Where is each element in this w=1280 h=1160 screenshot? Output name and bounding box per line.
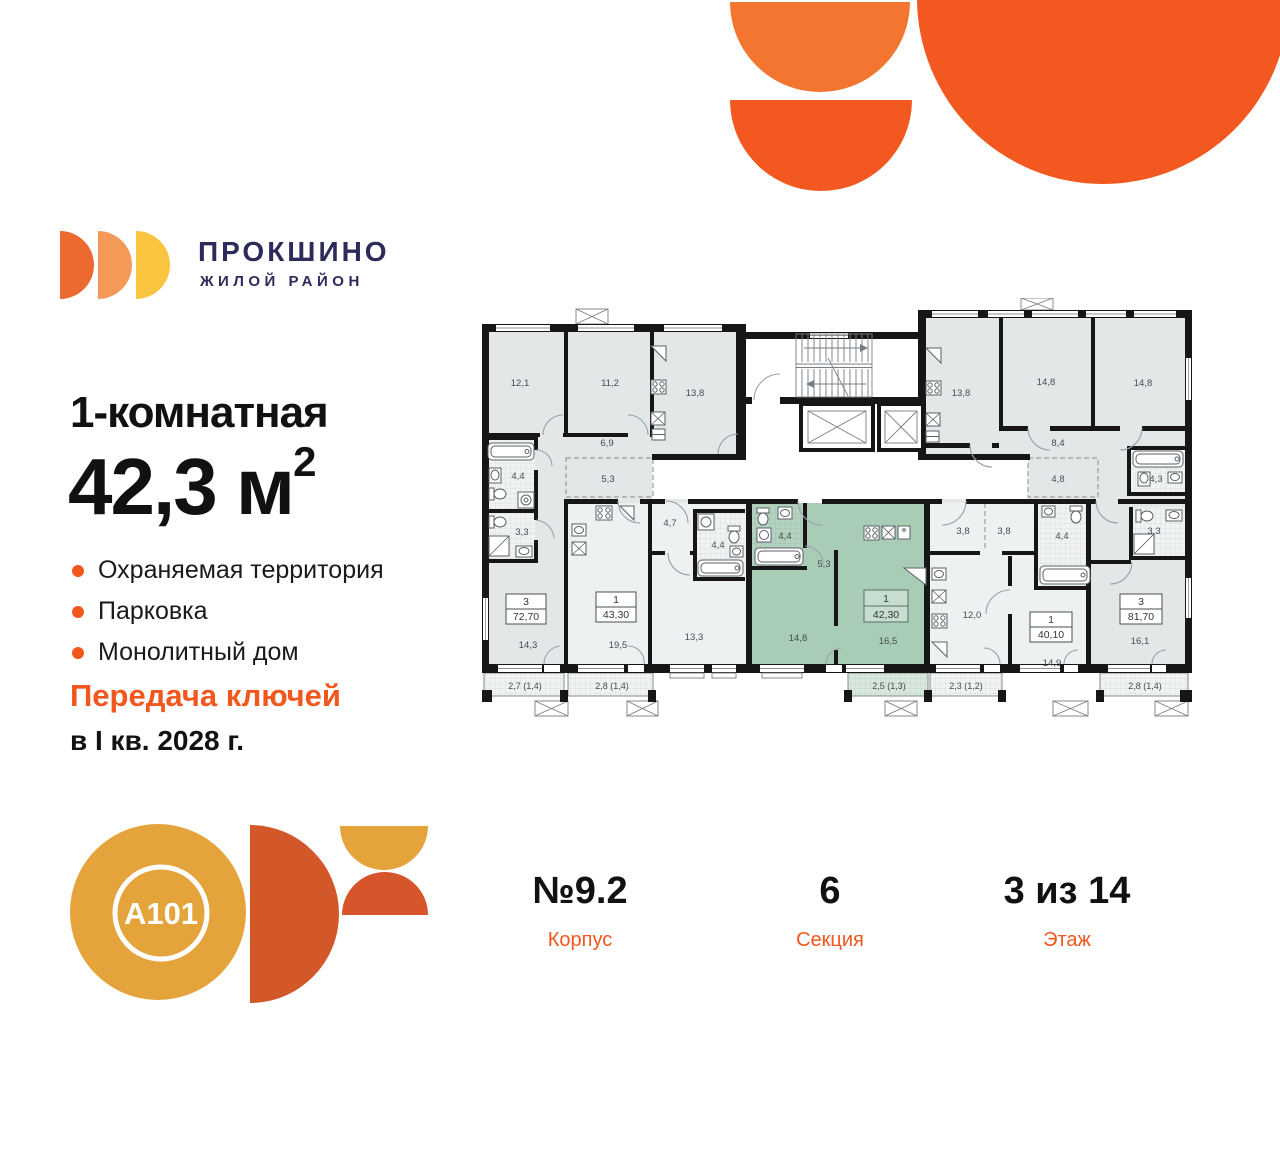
- feature-label: Монолитный дом: [98, 638, 299, 666]
- footer-etazh: 3 из 14 Этаж: [957, 870, 1177, 952]
- a101-halfdisc-orange: [342, 872, 428, 915]
- room-area: 12,0: [963, 610, 982, 621]
- sektsiya-value: 6: [720, 870, 940, 913]
- korpus-label: Корпус: [470, 929, 690, 952]
- svg-text:81,70: 81,70: [1128, 611, 1154, 623]
- offer-area-value: 42,3: [68, 442, 216, 531]
- room-area: 4,3: [1149, 474, 1162, 485]
- room-area: 6,9: [600, 438, 613, 449]
- room-area: 13,8: [686, 388, 705, 399]
- svg-text:1: 1: [613, 594, 619, 606]
- room-area: 19,5: [609, 640, 628, 651]
- handover-line2: в I кв. 2028 г.: [70, 725, 244, 757]
- elevators: [801, 404, 923, 450]
- room-area: 14,9: [1043, 658, 1062, 669]
- room-area: 16,5: [879, 636, 898, 647]
- plan-room-fills: [484, 314, 1188, 696]
- feature-label: Парковка: [98, 597, 208, 625]
- sektsiya-label: Секция: [720, 929, 940, 952]
- room-area: 4,8: [1051, 474, 1064, 485]
- svg-text:72,70: 72,70: [513, 611, 539, 623]
- svg-text:40,10: 40,10: [1038, 629, 1064, 641]
- room-area: 14,8: [1134, 378, 1153, 389]
- room-area: 14,3: [519, 640, 538, 651]
- bullet-icon: [72, 606, 84, 618]
- bullet-icon: [72, 565, 84, 577]
- room-area: 4,7: [663, 518, 676, 529]
- balcony-area: 2,7 (1,4): [508, 681, 542, 691]
- room-area: 13,8: [952, 388, 971, 399]
- apartment-box-42-highlighted: 1 42,30: [864, 590, 908, 622]
- deco-semicircle-light: [730, 2, 910, 92]
- svg-text:42,30: 42,30: [873, 609, 899, 621]
- svg-text:43,30: 43,30: [603, 609, 629, 621]
- apartment-box-40: 1 40,10: [1030, 612, 1072, 642]
- balcony-area: 2,8 (1,4): [595, 681, 629, 691]
- logo-d-shape-3: [136, 231, 170, 299]
- room-area: 4,4: [711, 540, 724, 551]
- svg-text:3: 3: [523, 596, 529, 608]
- feature-label: Охраняемая территория: [98, 556, 384, 584]
- apartment-box-72: 3 72,70: [506, 594, 546, 624]
- room-area: 13,3: [685, 632, 704, 643]
- brand-tagline: ЖИЛОЙ РАЙОН: [200, 273, 364, 290]
- room-area: 8,4: [1051, 438, 1064, 449]
- a101-label: A101: [124, 896, 198, 931]
- offer-area: 42,3 м2: [68, 438, 316, 533]
- deco-semicircle-dark: [730, 100, 912, 191]
- balcony-area: 2,3 (1,2): [949, 681, 983, 691]
- etazh-label: Этаж: [957, 929, 1177, 952]
- etazh-value: 3 из 14: [957, 870, 1177, 913]
- feature-item: Охраняемая территория: [72, 556, 384, 585]
- brand-name: ПРОКШИНО: [198, 236, 390, 268]
- room-area: 14,8: [789, 633, 808, 644]
- svg-text:1: 1: [883, 593, 889, 605]
- logo-d-shape-2: [98, 231, 132, 299]
- apartment-box-43: 1 43,30: [596, 592, 636, 622]
- room-area: 3,3: [1147, 526, 1160, 537]
- svg-text:3: 3: [1138, 596, 1144, 608]
- logo-d-shape-1: [60, 231, 94, 299]
- deco-semicircle-big: [917, 0, 1280, 184]
- bullet-icon: [72, 647, 84, 659]
- room-area: 5,3: [601, 474, 614, 485]
- room-area: 3,8: [956, 526, 969, 537]
- footer-sektsiya: 6 Секция: [720, 870, 940, 952]
- feature-item: Монолитный дом: [72, 638, 384, 667]
- floor-plan: 3 72,70 1 43,30 1 42,30 1 40,10 3 81,70 …: [480, 298, 1210, 728]
- balcony-area: 2,8 (1,4): [1128, 681, 1162, 691]
- a101-d-shape: [250, 825, 339, 1003]
- handover-line1: Передача ключей: [70, 678, 341, 714]
- room-area: 4,4: [778, 531, 791, 542]
- balcony-area: 2,5 (1,3): [872, 681, 906, 691]
- offer-area-sup: 2: [293, 438, 316, 485]
- room-area: 16,1: [1131, 636, 1150, 647]
- apartment-box-81: 3 81,70: [1120, 594, 1162, 624]
- svg-text:1: 1: [1048, 614, 1054, 626]
- room-area: 3,3: [515, 527, 528, 538]
- offer-area-unit: м: [216, 442, 293, 531]
- a101-halfdisc-yellow: [340, 826, 428, 870]
- feature-list: Охраняемая территория Парковка Монолитны…: [72, 556, 384, 679]
- room-area: 12,1: [511, 378, 530, 389]
- feature-item: Парковка: [72, 597, 384, 626]
- room-area: 11,2: [601, 378, 619, 389]
- room-area: 3,8: [997, 526, 1010, 537]
- room-area: 5,3: [817, 559, 830, 570]
- korpus-value: №9.2: [470, 870, 690, 913]
- room-area: 4,4: [511, 471, 524, 482]
- a101-logo: A101: [55, 810, 445, 1010]
- offer-rooms-title: 1-комнатная: [70, 388, 328, 438]
- room-area: 4,4: [1055, 531, 1068, 542]
- deco-top-shapes: [700, 0, 1280, 215]
- prokshino-logo-icon: [60, 231, 190, 299]
- footer-korpus: №9.2 Корпус: [470, 870, 690, 952]
- room-area: 14,8: [1037, 377, 1056, 388]
